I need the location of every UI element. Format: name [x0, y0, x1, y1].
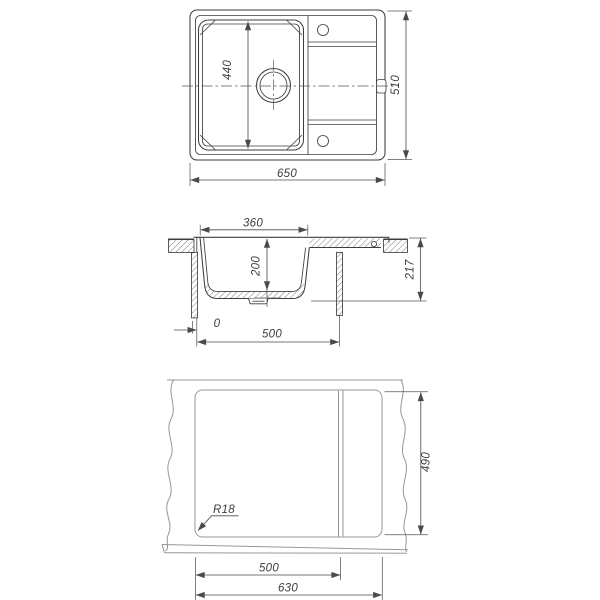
dim-overall-depth: 510 — [388, 11, 413, 160]
dim-bowl-top-width: 360 — [200, 218, 308, 236]
top-view: 440 510 650 — [182, 10, 412, 186]
dim-bowl-top-width-label: 360 — [243, 218, 263, 230]
cabinet-panel-right — [337, 252, 343, 315]
corner-radius-label: R18 — [213, 504, 235, 516]
dim-underside-width-label: 500 — [262, 329, 282, 341]
counter-section-hatch-right — [384, 240, 408, 253]
dim-overall-height-label: 217 — [405, 259, 417, 280]
dim-cutout-width: 630 — [196, 557, 382, 600]
cutout-view: R18 490 500 630 — [162, 380, 433, 600]
corner-radius-callout: R18 — [198, 504, 239, 531]
dim-overall-depth-label: 510 — [390, 75, 402, 95]
dim-bowl-depth-label: 200 — [251, 256, 263, 277]
dim-overall-width: 650 — [190, 163, 385, 186]
bowl-bottom-section-hatch — [205, 282, 306, 299]
dim-edge-offset: 0 — [174, 318, 221, 330]
clamp-screw — [371, 241, 376, 246]
counter-section-hatch-left — [169, 240, 195, 253]
dim-cutout-depth: 490 — [385, 392, 433, 535]
dim-edge-offset-label: 0 — [214, 318, 221, 330]
break-line-right — [401, 380, 407, 552]
dim-underside-width: 500 — [197, 329, 339, 343]
faucet-hole-bottom — [318, 136, 329, 147]
counter-front-edge — [162, 545, 408, 554]
dim-bowl-length: 440 — [222, 22, 248, 149]
faucet-hole-top — [318, 25, 329, 36]
section-view: 360 200 217 0 500 — [168, 218, 427, 347]
dim-bowl-length-label: 440 — [222, 60, 234, 80]
break-line-left — [166, 380, 174, 551]
dim-cutout-partial-width-label: 500 — [259, 563, 279, 575]
sink-outer-outline — [190, 10, 385, 160]
dim-overall-width-label: 650 — [277, 168, 297, 180]
dim-cutout-width-label: 630 — [278, 583, 298, 595]
sink-rim-inner-edge — [196, 16, 377, 155]
bowl-inner-outline — [203, 24, 300, 146]
sink-technical-drawing: 440 510 650 — [0, 0, 600, 600]
dim-cutout-depth-label: 490 — [421, 452, 433, 472]
dim-cutout-partial-width: 500 — [196, 557, 341, 600]
cabinet-panel-left — [192, 252, 198, 318]
drainboard-ridge-lines — [308, 42, 377, 125]
bowl-outer-outline — [199, 20, 304, 150]
drainboard-section-hatch — [309, 238, 381, 247]
sink-technical-drawing-page: 440 510 650 — [0, 0, 600, 600]
